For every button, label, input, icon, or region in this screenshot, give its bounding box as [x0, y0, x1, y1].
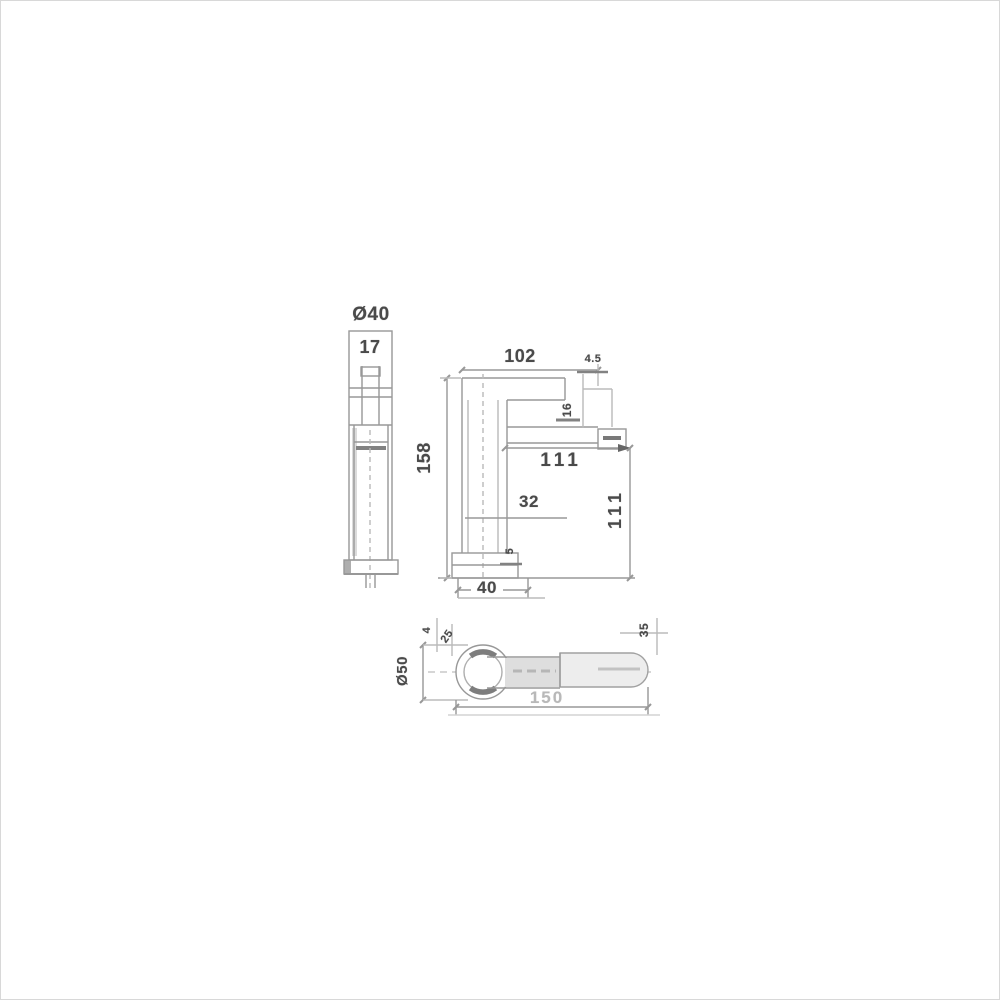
side-spout-length-102-label: 102	[496, 347, 544, 365]
side-5-label: 5	[505, 544, 519, 558]
side-32-label: 32	[513, 493, 545, 510]
plan-4-label: 4	[422, 623, 434, 637]
side-depth-111-label: 111	[606, 484, 624, 534]
side-height-158-label: 158	[415, 440, 433, 476]
front-diameter-label: Ø40	[345, 305, 397, 324]
side-tip-4-5-label: 4.5	[579, 354, 607, 365]
plan-diameter-50-label: Ø50	[395, 651, 413, 691]
drawing-linework	[0, 0, 1000, 1000]
front-width-17-label: 17	[356, 338, 384, 356]
side-base-40-label: 40	[471, 579, 503, 596]
plan-35-label: 35	[638, 620, 652, 640]
side-16-label: 16	[561, 399, 575, 421]
plan-length-150-label: 150	[523, 689, 571, 706]
side-reach-111-label: 111	[536, 451, 586, 470]
